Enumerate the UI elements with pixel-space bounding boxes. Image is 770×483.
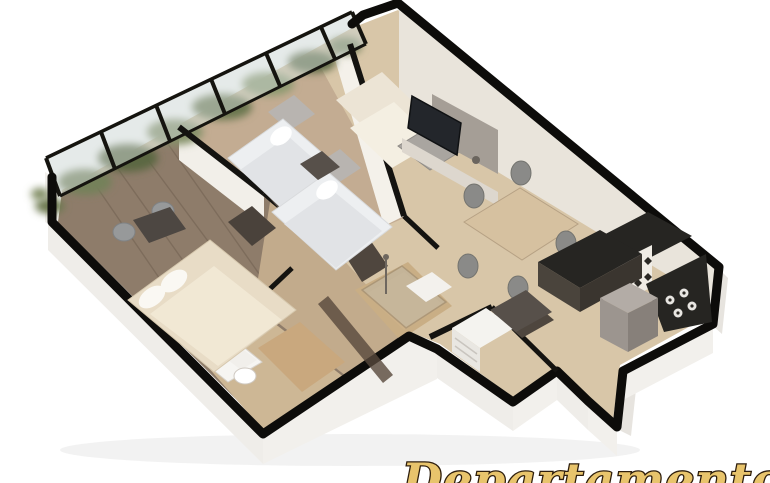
master-armchair-1 <box>113 223 135 241</box>
burner-3-grate <box>676 311 679 314</box>
dining-chair-1 <box>464 184 484 208</box>
foliage-corner-plant-2 <box>31 188 49 200</box>
toilet-bowl <box>234 368 256 384</box>
tv-decor <box>472 156 480 164</box>
apartment-floorplan-image: Departamento <box>0 0 770 483</box>
dining-chair-2 <box>511 161 531 185</box>
burner-2-grate <box>682 291 685 294</box>
burner-1-grate <box>668 298 671 301</box>
burner-4-grate <box>690 304 693 307</box>
caption-text: Departamento <box>400 453 770 483</box>
shower2-head <box>383 254 389 260</box>
dining-chair-3 <box>458 254 478 278</box>
floor-plan-svg: Departamento <box>0 0 770 483</box>
